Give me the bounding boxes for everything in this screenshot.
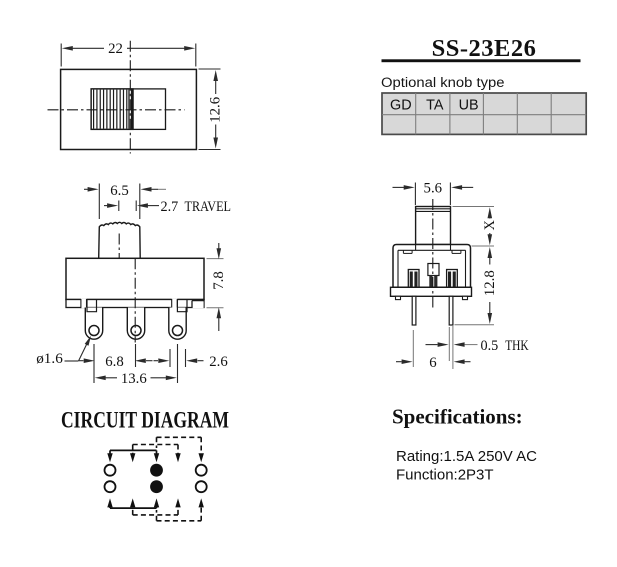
- svg-text:6.5: 6.5: [110, 183, 129, 199]
- svg-text:UB: UB: [459, 98, 479, 114]
- svg-text:Function:2P3T: Function:2P3T: [396, 467, 494, 484]
- svg-text:13.6: 13.6: [121, 371, 147, 387]
- svg-text:2.6: 2.6: [209, 354, 228, 370]
- svg-text:5.6: 5.6: [424, 181, 443, 197]
- svg-text:THK: THK: [505, 338, 529, 354]
- svg-text:0.5: 0.5: [481, 338, 499, 354]
- svg-text:6.8: 6.8: [105, 354, 124, 370]
- svg-text:X: X: [482, 220, 498, 230]
- svg-text:GD: GD: [390, 98, 412, 114]
- svg-text:TA: TA: [426, 98, 444, 114]
- svg-text:2.7: 2.7: [161, 199, 179, 215]
- svg-text:7.8: 7.8: [211, 271, 227, 290]
- svg-text:Optional knob type: Optional knob type: [381, 75, 505, 91]
- svg-text:12.8: 12.8: [482, 270, 498, 296]
- svg-text:22: 22: [108, 41, 123, 57]
- svg-text:Specifications:: Specifications:: [392, 405, 523, 429]
- svg-text:CIRCUIT DIAGRAM: CIRCUIT DIAGRAM: [61, 408, 229, 433]
- svg-text:SS-23E26: SS-23E26: [432, 35, 537, 62]
- svg-text:TRAVEL: TRAVEL: [185, 199, 232, 215]
- svg-text:6: 6: [429, 355, 436, 371]
- svg-text:Rating:1.5A 250V AC: Rating:1.5A 250V AC: [396, 448, 537, 465]
- svg-text:12.6: 12.6: [208, 97, 224, 123]
- svg-text:ø1.6: ø1.6: [36, 350, 63, 367]
